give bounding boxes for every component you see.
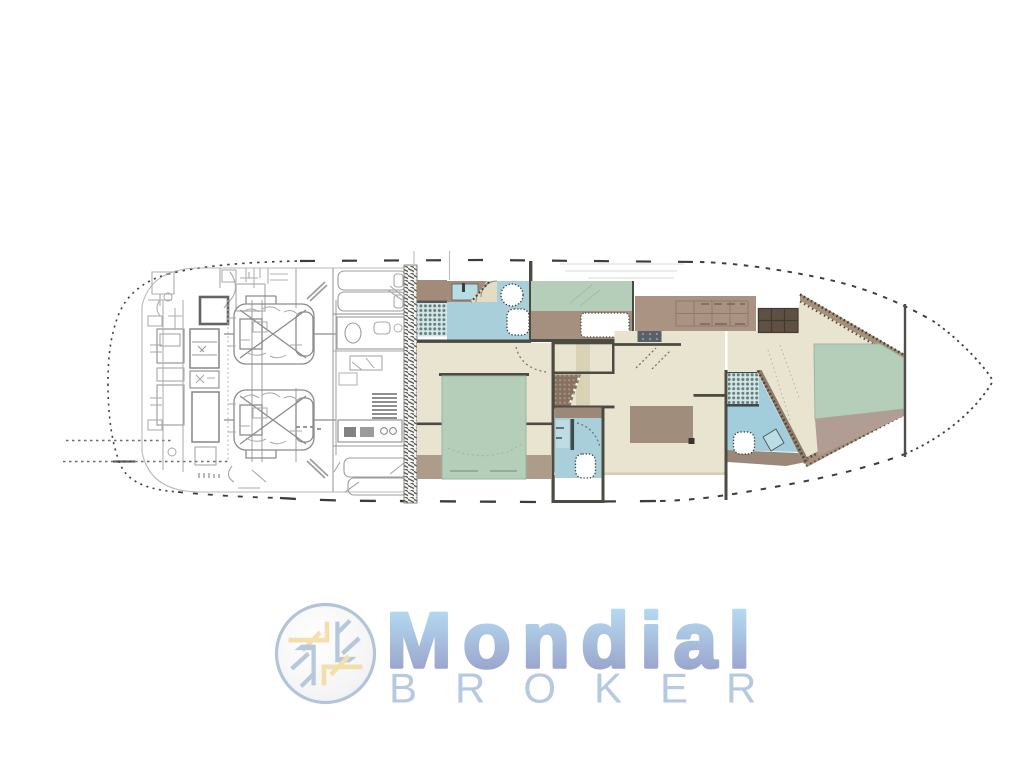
svg-text:BROKER: BROKER [389,665,794,712]
